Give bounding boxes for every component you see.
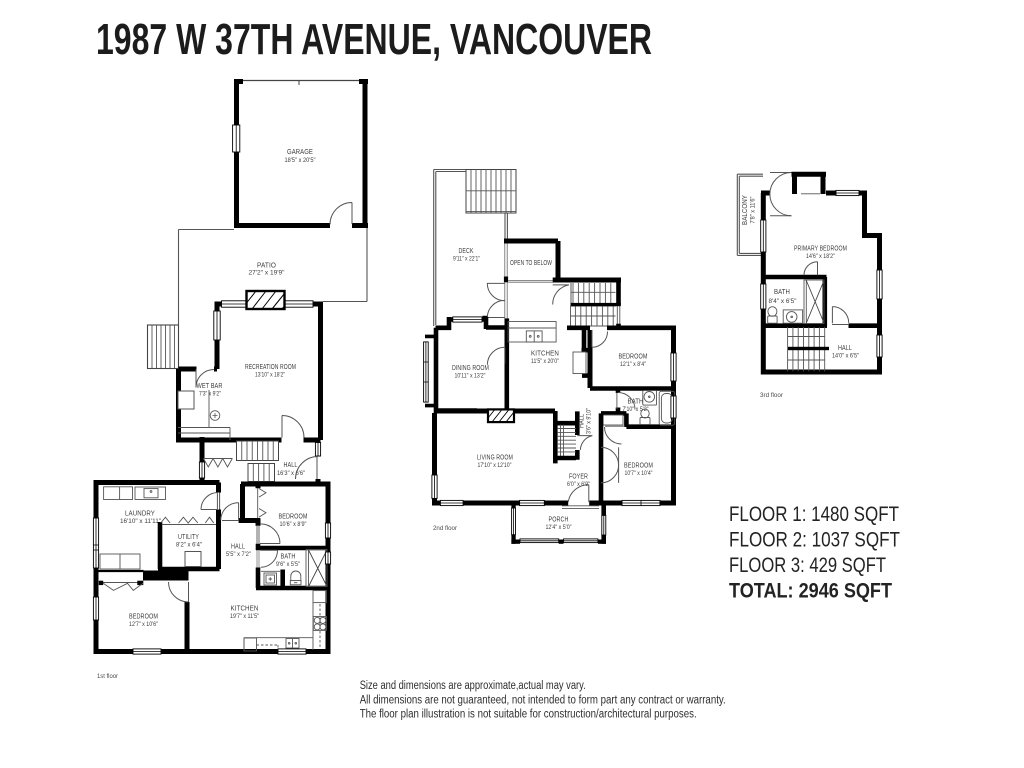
svg-text:HALL: HALL xyxy=(284,462,298,469)
svg-text:FLOOR 1: 1480 SQFT: FLOOR 1: 1480 SQFT xyxy=(729,503,899,526)
svg-text:5'5" x 7'2": 5'5" x 7'2" xyxy=(226,551,252,558)
svg-text:18'5" x 20'5": 18'5" x 20'5" xyxy=(285,157,317,164)
svg-text:17'10" x 12'10": 17'10" x 12'10" xyxy=(478,462,513,469)
svg-text:PRIMARY BEDROOM: PRIMARY BEDROOM xyxy=(794,246,847,253)
svg-text:BATH: BATH xyxy=(281,554,296,561)
svg-text:8'2" x 6'4": 8'2" x 6'4" xyxy=(176,542,203,549)
svg-text:14'0" x 6'5": 14'0" x 6'5" xyxy=(832,353,860,360)
svg-text:HALL: HALL xyxy=(838,345,852,352)
svg-text:1987 W 37TH AVENUE, VANCOUVER: 1987 W 37TH AVENUE, VANCOUVER xyxy=(96,15,652,64)
svg-text:BEDROOM: BEDROOM xyxy=(619,354,648,361)
svg-text:KITCHEN: KITCHEN xyxy=(531,351,559,358)
svg-text:LIVING ROOM: LIVING ROOM xyxy=(477,455,513,462)
svg-text:HALL: HALL xyxy=(231,544,245,551)
svg-text:3rd floor: 3rd floor xyxy=(760,392,784,399)
svg-text:27'2" x 19'9": 27'2" x 19'9" xyxy=(249,270,286,277)
svg-text:BEDROOM: BEDROOM xyxy=(129,614,158,621)
svg-text:9'6" x 5'5": 9'6" x 5'5" xyxy=(276,561,301,568)
svg-text:BATH: BATH xyxy=(774,289,790,296)
svg-text:1st floor: 1st floor xyxy=(97,673,119,680)
svg-text:BALCONY: BALCONY xyxy=(742,195,749,225)
svg-text:12'7" x 10'6": 12'7" x 10'6" xyxy=(129,621,159,628)
svg-text:UTILITY: UTILITY xyxy=(178,534,199,541)
svg-text:10'11" x 13'2": 10'11" x 13'2" xyxy=(455,373,487,380)
svg-text:7'10" x 5'2": 7'10" x 5'2" xyxy=(623,406,650,413)
svg-text:3'6" x 9'10": 3'6" x 9'10" xyxy=(586,407,593,434)
svg-text:14'6" x 18'2": 14'6" x 18'2" xyxy=(806,253,836,260)
svg-text:BEDROOM: BEDROOM xyxy=(279,514,308,521)
svg-text:RECREATION ROOM: RECREATION ROOM xyxy=(245,364,296,371)
svg-text:HALL: HALL xyxy=(579,414,586,428)
svg-text:10'6" x 8'9": 10'6" x 8'9" xyxy=(280,521,308,528)
svg-text:16'10" x 11'11": 16'10" x 11'11" xyxy=(120,518,162,525)
svg-text:10'7" x 10'4": 10'7" x 10'4" xyxy=(625,470,654,477)
svg-text:11'5" x 20'0": 11'5" x 20'0" xyxy=(531,358,560,365)
svg-text:13'10" x 18'2": 13'10" x 18'2" xyxy=(255,372,285,379)
svg-text:PATIO: PATIO xyxy=(257,263,276,270)
svg-text:16'3" x 6'6": 16'3" x 6'6" xyxy=(277,470,306,477)
svg-text:BEDROOM: BEDROOM xyxy=(624,463,653,470)
svg-text:TOTAL: 2946 SQFT: TOTAL: 2946 SQFT xyxy=(729,580,892,603)
svg-text:2nd floor: 2nd floor xyxy=(433,525,458,532)
svg-text:9'11" x 22'1": 9'11" x 22'1" xyxy=(453,256,480,263)
svg-text:All dimensions are not guarant: All dimensions are not guaranteed, not i… xyxy=(360,694,726,706)
svg-text:PORCH: PORCH xyxy=(549,517,569,524)
svg-text:Size and dimensions are approx: Size and dimensions are approximate,actu… xyxy=(360,680,586,692)
svg-text:DECK: DECK xyxy=(459,248,474,255)
svg-text:OPEN TO BELOW: OPEN TO BELOW xyxy=(510,260,552,267)
svg-text:12'1" x 8'4": 12'1" x 8'4" xyxy=(620,361,647,368)
svg-text:19'7" x 11'5": 19'7" x 11'5" xyxy=(230,613,260,620)
svg-text:The floor plan illustration is: The floor plan illustration is not suita… xyxy=(360,709,697,721)
svg-text:7'8" x 11'6": 7'8" x 11'6" xyxy=(750,196,757,224)
svg-text:LAUNDRY: LAUNDRY xyxy=(125,511,155,518)
svg-text:WET BAR: WET BAR xyxy=(197,383,223,390)
svg-text:DINING ROOM: DINING ROOM xyxy=(452,365,489,372)
svg-text:8'4" x 6'5": 8'4" x 6'5" xyxy=(769,298,798,305)
svg-text:FLOOR 3: 429 SQFT: FLOOR 3: 429 SQFT xyxy=(729,554,886,577)
svg-text:FOYER: FOYER xyxy=(569,474,588,481)
svg-text:GARAGE: GARAGE xyxy=(287,149,313,156)
svg-text:BATH: BATH xyxy=(628,399,644,406)
svg-text:7'3" x 9'2": 7'3" x 9'2" xyxy=(199,391,221,398)
svg-text:KITCHEN: KITCHEN xyxy=(231,606,259,613)
svg-text:12'4" x 5'0": 12'4" x 5'0" xyxy=(546,524,573,531)
svg-text:FLOOR 2: 1037 SQFT: FLOOR 2: 1037 SQFT xyxy=(729,529,900,552)
